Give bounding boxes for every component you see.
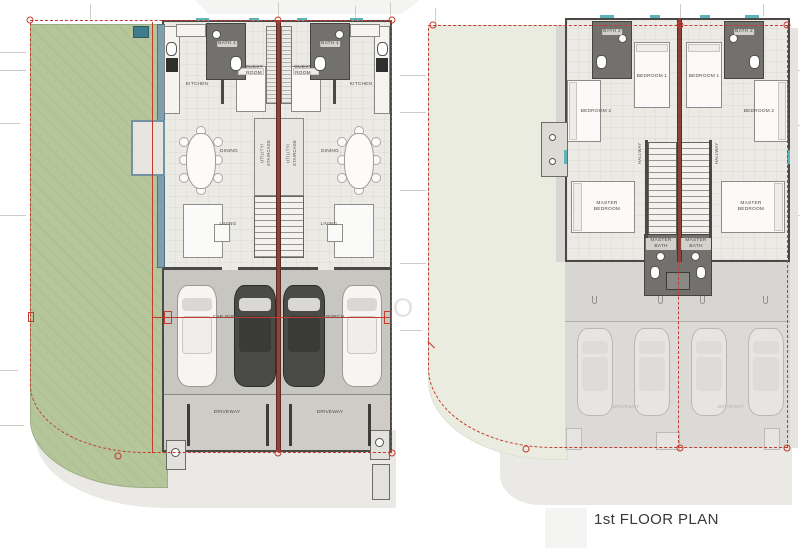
car-top-view [283, 285, 325, 387]
bed-pillow [688, 44, 720, 52]
ghost-meter-box [764, 428, 780, 450]
window-strip [600, 15, 614, 18]
roof-eave-strip [789, 28, 798, 448]
floor-plan-sheet: O U [0, 0, 800, 548]
dimension-tick [0, 425, 24, 426]
window-strip [650, 15, 660, 18]
window-strip [787, 150, 790, 164]
bed-pillow [778, 82, 786, 140]
staircase [648, 142, 677, 236]
car-roof [347, 316, 377, 354]
room-label-driveway: DRIVEWAY [214, 410, 241, 416]
dimension-tick [400, 112, 426, 113]
room-label-master-bedroom: MASTER BEDROOM [731, 201, 771, 213]
first-floor-plan-title: 1st FLOOR PLAN [594, 511, 719, 528]
room-label-utility-staircase: UTILITY/ STAIRCASE [260, 130, 273, 176]
meter-box [372, 464, 390, 500]
room-label-dining: DINING [220, 149, 238, 155]
boundary-corner-marker [27, 17, 34, 24]
dimension-tick [400, 190, 426, 191]
toilet [696, 266, 706, 279]
dimension-tick [680, 4, 681, 18]
boundary-marker [28, 312, 34, 322]
dimension-tick [435, 8, 436, 23]
room-label-bath2: BATH 2 [602, 29, 622, 35]
boundary-corner-marker [677, 445, 684, 452]
party-wall-projection-line [678, 262, 680, 448]
boundary-corner-marker [523, 446, 530, 453]
dimension-tick [0, 370, 18, 371]
window-strip [564, 150, 567, 164]
boundary-corner-marker [389, 450, 396, 457]
gate-post [289, 404, 292, 446]
dimension-tick [763, 4, 764, 16]
bed-pillow [573, 183, 582, 231]
boundary-corner-marker [677, 22, 684, 29]
ground-floor-plan: KITCHEN KITCHEN BATH 1 BATH 1 GUEST ROOM… [0, 0, 400, 548]
dining-chair [371, 137, 381, 147]
room-label-living: LIVING [321, 222, 338, 228]
room-label-driveway: DRIVEWAY [317, 410, 344, 416]
car-roof [239, 316, 271, 352]
stove [376, 58, 388, 72]
room-label-kitchen: KITCHEN [350, 82, 372, 88]
room-label-guest-room: GUEST ROOM [241, 65, 267, 77]
garden-lawn [30, 24, 168, 488]
ghost-car-top-view [748, 328, 784, 416]
stove [166, 58, 178, 72]
dimension-tick [400, 263, 426, 264]
roof-drain-hook [592, 296, 597, 304]
toilet [749, 55, 760, 69]
room-label-driveway-ghost: DRIVEWAY [718, 405, 745, 411]
kitchen-counter [176, 24, 206, 37]
room-label-bedroom1: BEDROOM 1 [637, 74, 668, 80]
window-strip [745, 15, 759, 18]
bed-pillow [569, 82, 577, 140]
window-strip [350, 18, 363, 21]
window-strip [196, 18, 209, 21]
gate-post [187, 404, 190, 446]
car-windshield [182, 298, 212, 311]
car-top-view [177, 285, 217, 387]
front-wall [164, 267, 222, 270]
gate-post [368, 404, 371, 446]
room-label-hallway: HALLWAY [637, 135, 643, 171]
room-label-living: LIVING [220, 222, 237, 228]
room-label-dining: DINING [321, 149, 339, 155]
dining-table [186, 133, 216, 189]
car-windshield [347, 298, 377, 311]
sink [656, 252, 665, 261]
room-label-utility-staircase: UTILITY/ STAIRCASE [286, 130, 299, 176]
ghost-meter-box [566, 428, 582, 450]
kitchen-sink [377, 42, 388, 56]
car-windshield [582, 341, 608, 354]
car-windshield [239, 298, 271, 311]
roof-drain-hook [658, 296, 663, 304]
room-label-bath1: BATH 1 [217, 41, 237, 47]
wall-stub [333, 80, 336, 104]
car-windshield [753, 341, 779, 354]
stair-wall [709, 140, 712, 238]
room-label-master-bath: MASTER BATH [646, 238, 676, 250]
party-wall [276, 20, 281, 452]
room-label-bath2: BATH 2 [734, 29, 754, 35]
dimension-tick [0, 123, 20, 124]
roof-drain-hook [763, 296, 768, 304]
car-top-view [234, 285, 276, 387]
boundary-corner-marker [430, 22, 437, 29]
window-strip [249, 18, 259, 21]
gate-post [266, 404, 269, 446]
dimension-tick [0, 70, 26, 71]
room-label-bedroom2: BEDROOM 2 [581, 109, 612, 115]
boundary-corner-marker [275, 17, 282, 24]
car-roof [182, 316, 212, 354]
ghost-car-top-view [691, 328, 727, 416]
boundary-corner-marker [784, 22, 791, 29]
ghost-car-top-view [577, 328, 613, 416]
car-windshield [696, 341, 722, 354]
meter-dial [375, 438, 384, 447]
window-strip [700, 15, 710, 18]
ghost-car-top-view [634, 328, 670, 416]
boundary-corner-marker [115, 453, 122, 460]
front-wall [334, 267, 390, 270]
boundary-marker [164, 311, 172, 324]
party-wall [677, 18, 682, 262]
staircase [254, 196, 278, 258]
toilet [650, 266, 660, 279]
dimension-tick [400, 75, 426, 76]
room-label-car-porch: CAR PORCH [213, 315, 244, 321]
sink [335, 30, 344, 39]
toilet [596, 55, 607, 69]
boundary-corner-marker [389, 17, 396, 24]
sink [618, 34, 627, 43]
stair-wall [645, 140, 648, 238]
room-label-driveway-ghost: DRIVEWAY [613, 405, 640, 411]
boundary-corner-marker [275, 450, 282, 457]
car-windshield [288, 298, 320, 311]
sink [729, 34, 738, 43]
roof-drain-hook [700, 296, 705, 304]
side-entry-box [131, 120, 165, 176]
boundary-corner-marker [784, 445, 791, 452]
ledge-fitting [549, 158, 556, 165]
unit-boundary-line [152, 22, 153, 453]
garden-lawn-ghost [428, 25, 568, 460]
wall-stub [221, 80, 224, 104]
room-label-bedroom1: BEDROOM 1 [689, 74, 720, 80]
meter-dial [171, 448, 180, 457]
dining-chair [213, 137, 223, 147]
water-tank [133, 26, 149, 38]
ledge-fitting [549, 134, 556, 141]
kitchen-sink [166, 42, 177, 56]
room-label-car-porch: CAR PORCH [314, 315, 345, 321]
car-windshield [639, 341, 665, 354]
car-roof [582, 357, 608, 391]
dining-table [344, 133, 374, 189]
dimension-tick [0, 52, 26, 53]
first-floor-plan: BATH 2 BATH 2 BEDROOM 1 BEDROOM 1 BEDROO… [400, 0, 800, 548]
window-strip [297, 18, 307, 21]
setback-line [153, 317, 392, 318]
car-roof [639, 357, 665, 391]
sink [212, 30, 221, 39]
room-label-bedroom2: BEDROOM 2 [744, 109, 775, 115]
bed-pillow [774, 183, 783, 231]
car-top-view [342, 285, 382, 387]
sink [691, 252, 700, 261]
room-label-hallway: HALLWAY [714, 135, 720, 171]
room-label-kitchen: KITCHEN [186, 82, 208, 88]
car-roof [288, 316, 320, 352]
kitchen-counter [350, 24, 380, 37]
room-label-bath1: BATH 1 [320, 41, 340, 47]
staircase [681, 142, 710, 236]
room-label-guest-room: GUEST ROOM [290, 65, 316, 77]
room-label-master-bath: MASTER BATH [681, 238, 711, 250]
staircase [280, 196, 304, 258]
car-roof [696, 357, 722, 391]
dimension-tick [0, 215, 26, 216]
dimension-tick [90, 4, 91, 19]
boundary-marker [384, 311, 392, 324]
dimension-tick [400, 330, 422, 331]
bed-pillow [636, 44, 668, 52]
car-roof [753, 357, 779, 391]
room-label-master-bedroom: MASTER BEDROOM [587, 201, 627, 213]
